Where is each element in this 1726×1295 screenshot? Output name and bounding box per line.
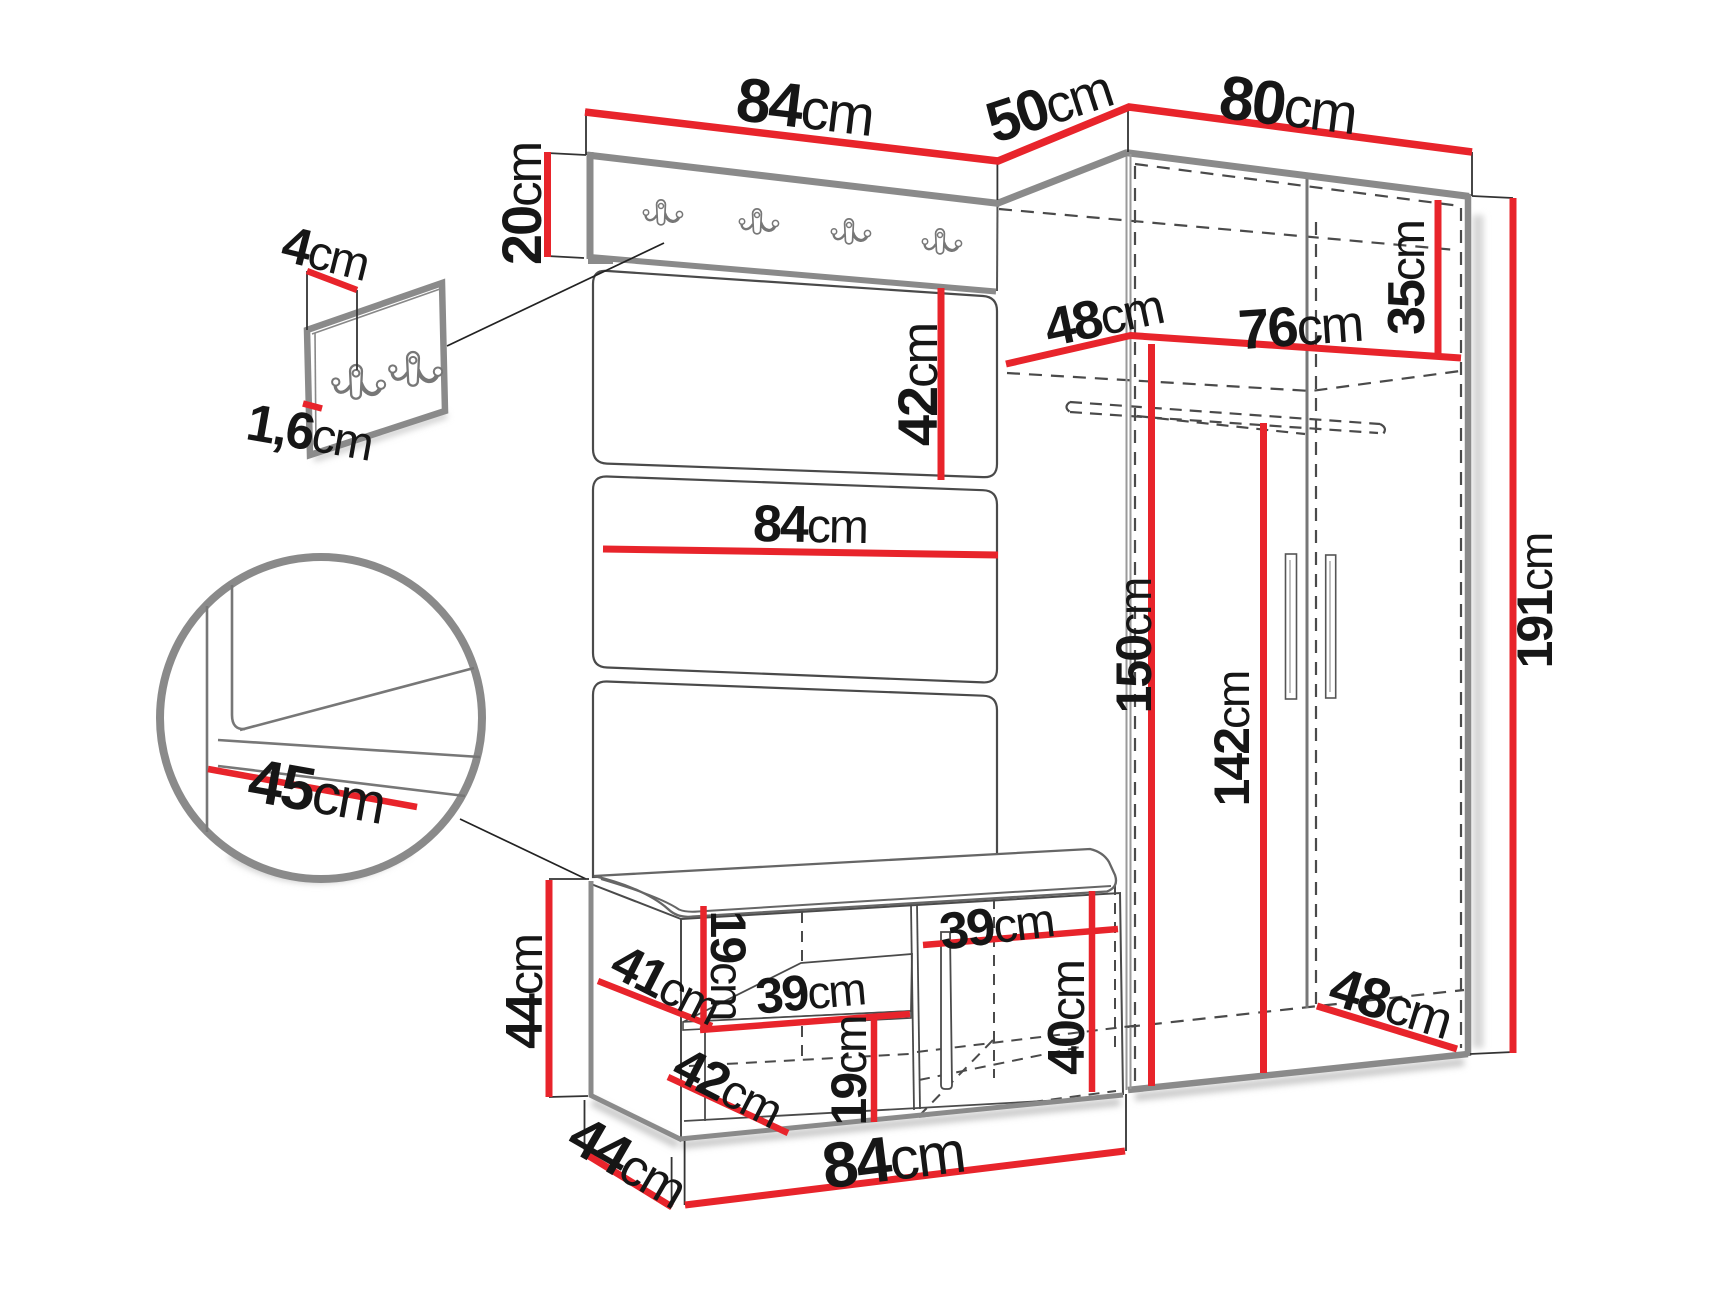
svg-text:150cm: 150cm — [1106, 579, 1162, 714]
svg-text:191cm: 191cm — [1507, 534, 1563, 669]
svg-text:39cm: 39cm — [753, 959, 866, 1024]
svg-text:35cm: 35cm — [1378, 221, 1436, 335]
svg-text:142cm: 142cm — [1204, 672, 1260, 807]
svg-text:19cm: 19cm — [821, 1017, 877, 1126]
svg-text:20cm: 20cm — [490, 143, 553, 265]
svg-text:76cm: 76cm — [1236, 290, 1364, 361]
svg-text:40cm: 40cm — [1038, 961, 1096, 1075]
svg-text:42cm: 42cm — [886, 324, 949, 446]
svg-text:84cm: 84cm — [753, 495, 868, 555]
svg-text:44cm: 44cm — [496, 935, 554, 1049]
svg-text:19cm: 19cm — [700, 911, 756, 1020]
